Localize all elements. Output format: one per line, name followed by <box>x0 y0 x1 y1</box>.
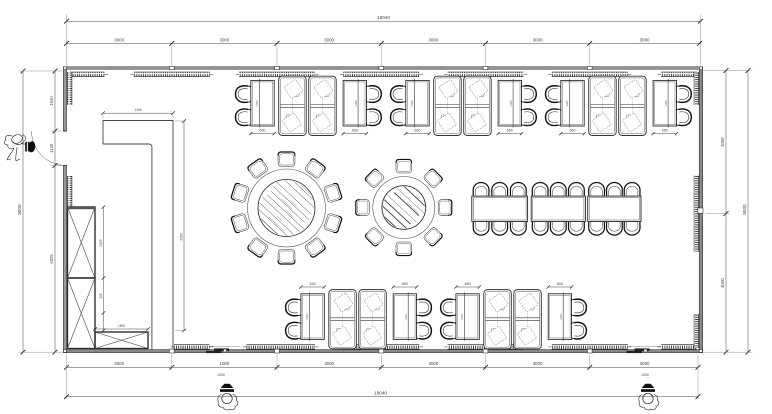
svg-text:18040: 18040 <box>374 390 387 395</box>
svg-text:1380: 1380 <box>255 100 259 107</box>
svg-text:8000: 8000 <box>17 204 22 215</box>
svg-text:3000: 3000 <box>429 37 439 42</box>
svg-text:1380: 1380 <box>565 100 569 107</box>
svg-text:6325: 6325 <box>49 254 54 264</box>
svg-text:3000: 3000 <box>429 361 439 366</box>
svg-text:1380: 1380 <box>509 100 513 107</box>
svg-text:1380: 1380 <box>305 313 309 320</box>
svg-text:650: 650 <box>402 282 408 286</box>
svg-text:1380: 1380 <box>410 100 414 107</box>
svg-text:1380: 1380 <box>404 313 408 320</box>
svg-text:650: 650 <box>415 129 421 133</box>
svg-text:18040: 18040 <box>377 15 390 20</box>
svg-text:1380: 1380 <box>559 313 563 320</box>
svg-text:650: 650 <box>465 282 471 286</box>
svg-text:1380: 1380 <box>354 100 358 107</box>
svg-text:1000: 1000 <box>220 361 230 366</box>
svg-text:3000: 3000 <box>533 361 543 366</box>
svg-text:2125: 2125 <box>99 239 103 246</box>
svg-text:450: 450 <box>99 293 103 299</box>
svg-text:5300: 5300 <box>179 233 183 240</box>
svg-text:3000: 3000 <box>114 361 124 366</box>
svg-text:1000: 1000 <box>641 373 649 377</box>
svg-text:650: 650 <box>507 129 513 133</box>
svg-text:650: 650 <box>662 129 668 133</box>
svg-text:650: 650 <box>557 282 563 286</box>
svg-text:1000: 1000 <box>217 373 225 377</box>
svg-text:3000: 3000 <box>114 37 124 42</box>
svg-text:1540: 1540 <box>49 96 54 106</box>
svg-text:4000: 4000 <box>720 278 725 288</box>
svg-text:650: 650 <box>352 129 358 133</box>
svg-text:1380: 1380 <box>460 313 464 320</box>
svg-text:3000: 3000 <box>324 361 334 366</box>
svg-text:650: 650 <box>310 282 316 286</box>
svg-text:1346: 1346 <box>134 108 141 112</box>
svg-text:650: 650 <box>260 129 266 133</box>
svg-text:3000: 3000 <box>324 37 334 42</box>
svg-text:1130: 1130 <box>49 143 54 153</box>
svg-text:1380: 1380 <box>664 100 668 107</box>
svg-text:650: 650 <box>570 129 576 133</box>
svg-text:3000: 3000 <box>533 37 543 42</box>
svg-text:3000: 3000 <box>220 37 230 42</box>
svg-text:1500: 1500 <box>118 324 125 328</box>
svg-text:3000: 3000 <box>640 361 650 366</box>
svg-text:3000: 3000 <box>640 37 650 42</box>
svg-text:4000: 4000 <box>720 137 725 147</box>
svg-text:8000: 8000 <box>742 204 747 215</box>
